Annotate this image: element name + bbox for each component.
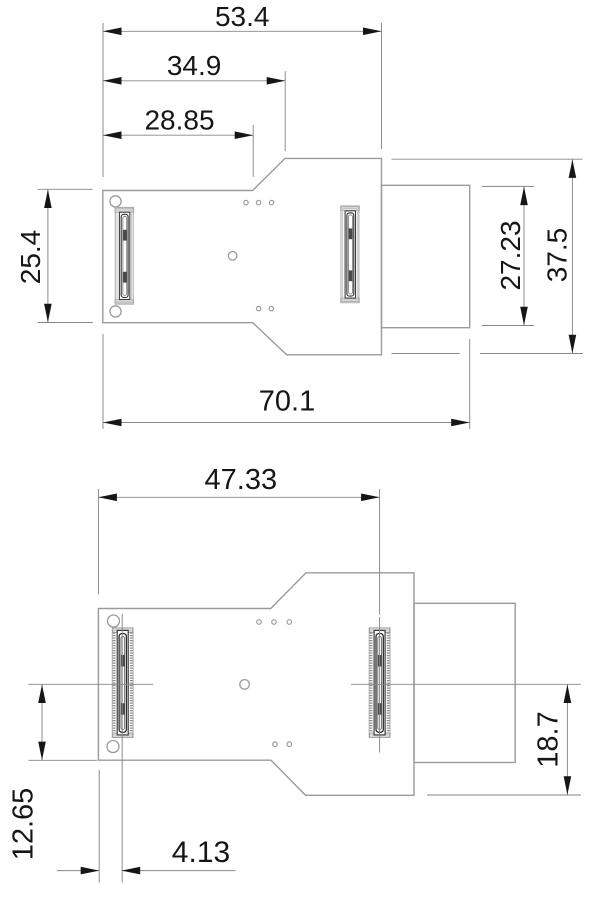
svg-text:70.1: 70.1	[259, 386, 315, 418]
svg-text:47.33: 47.33	[205, 464, 278, 496]
svg-text:28.85: 28.85	[144, 104, 214, 135]
svg-text:25.4: 25.4	[15, 230, 46, 285]
svg-text:12.65: 12.65	[8, 788, 40, 861]
svg-text:34.9: 34.9	[167, 50, 222, 81]
svg-text:18.7: 18.7	[533, 711, 565, 767]
svg-text:53.4: 53.4	[215, 1, 270, 32]
svg-text:4.13: 4.13	[172, 836, 230, 869]
svg-text:37.5: 37.5	[542, 228, 573, 283]
svg-text:27.23: 27.23	[495, 220, 526, 290]
